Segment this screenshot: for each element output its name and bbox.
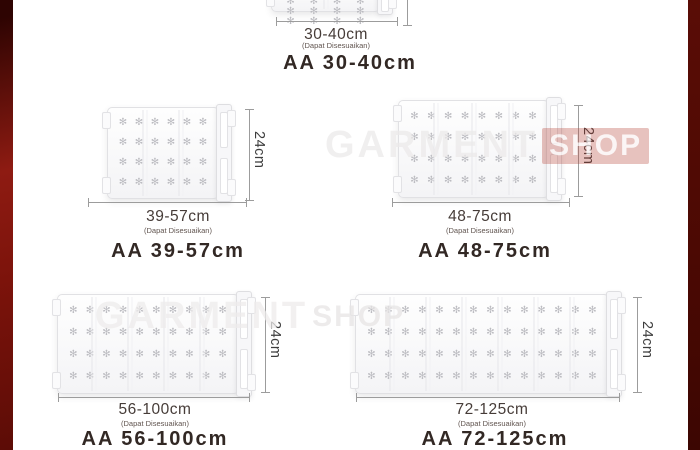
shelf-corner-tab xyxy=(227,110,236,127)
height-value: 24cm xyxy=(267,321,283,358)
flower-hole-icon: ✻ xyxy=(151,178,159,188)
flower-hole-icon: ✻ xyxy=(401,328,409,338)
flower-hole-icon: ✻ xyxy=(588,328,596,338)
flower-hole-icon: ✻ xyxy=(136,372,144,382)
flower-hole-icon: ✻ xyxy=(486,350,494,360)
flower-hole-icon: ✻ xyxy=(537,306,545,316)
flower-hole-icon: ✻ xyxy=(588,372,596,382)
height-value: 24cm xyxy=(580,127,596,164)
section-divider xyxy=(390,297,395,391)
flower-hole-icon: ✻ xyxy=(219,328,227,338)
flower-hole-icon: ✻ xyxy=(461,112,469,122)
flower-hole-icon: ✻ xyxy=(503,306,511,316)
flower-hole-icon: ✻ xyxy=(169,328,177,338)
width-value: 56-100cm xyxy=(75,401,235,419)
height-value: 24cm xyxy=(251,131,267,168)
variant-title: AA 72-125cm xyxy=(400,428,590,450)
shelf-corner-tab xyxy=(247,374,256,391)
section-divider xyxy=(426,297,431,391)
flower-hole-icon: ✻ xyxy=(520,372,528,382)
section-divider xyxy=(142,110,147,196)
flower-hole-icon: ✻ xyxy=(136,350,144,360)
shelf-48-75: ✻✻✻✻✻✻✻✻✻✻✻✻✻✻✻✻✻✻✻✻✻✻✻✻✻✻✻✻✻✻✻✻ xyxy=(398,100,561,198)
section-divider xyxy=(462,297,467,391)
flower-hole-icon: ✻ xyxy=(102,306,110,316)
flower-hole-icon: ✻ xyxy=(444,133,452,143)
flower-hole-icon: ✻ xyxy=(136,306,144,316)
shelf-panel: ✻✻✻✻✻✻✻✻✻✻✻✻✻✻✻✻✻✻✻✻✻✻✻✻✻✻✻✻✻✻✻✻ xyxy=(398,100,549,198)
flower-hole-icon: ✻ xyxy=(528,176,536,186)
flower-hole-icon: ✻ xyxy=(69,350,77,360)
shelf-corner-tab xyxy=(617,297,626,314)
flower-hole-icon: ✻ xyxy=(199,138,207,148)
flower-hole-icon: ✻ xyxy=(469,306,477,316)
shelf-corner-tab xyxy=(393,176,402,193)
adjustable-note: (Dapat Disesuaikan) xyxy=(400,226,560,235)
flower-hole-icon: ✻ xyxy=(69,328,77,338)
width-dimension-line xyxy=(88,198,247,207)
adjustable-note: (Dapat Disesuaikan) xyxy=(276,41,396,50)
shelf-56-100: ✻✻✻✻✻✻✻✻✻✻✻✻✻✻✻✻✻✻✻✻✻✻✻✻✻✻✻✻✻✻✻✻✻✻✻✻✻✻✻✻ xyxy=(57,294,251,394)
section-divider xyxy=(534,297,539,391)
right-red-border xyxy=(688,0,700,450)
width-dimension-line xyxy=(276,17,398,26)
flower-hole-icon: ✻ xyxy=(167,158,175,168)
flower-hole-icon: ✻ xyxy=(554,372,562,382)
adjustable-note: (Dapat Disesuaikan) xyxy=(412,419,572,428)
flower-hole-icon: ✻ xyxy=(444,112,452,122)
flower-hole-icon: ✻ xyxy=(169,372,177,382)
flower-hole-icon: ✻ xyxy=(435,306,443,316)
flower-hole-icon: ✻ xyxy=(435,350,443,360)
shelf-corner-tab xyxy=(350,372,359,389)
perforation-grid: ✻✻✻✻✻✻✻✻✻✻✻✻✻✻✻✻✻✻✻✻✻✻✻✻ xyxy=(115,113,211,193)
flower-hole-icon: ✻ xyxy=(554,328,562,338)
flower-hole-icon: ✻ xyxy=(199,178,207,188)
flower-hole-icon: ✻ xyxy=(528,133,536,143)
flower-hole-icon: ✻ xyxy=(410,112,418,122)
flower-hole-icon: ✻ xyxy=(469,328,477,338)
flower-hole-icon: ✻ xyxy=(410,133,418,143)
flower-hole-icon: ✻ xyxy=(185,350,193,360)
variant-title: AA 39-57cm xyxy=(90,240,266,263)
flower-hole-icon: ✻ xyxy=(528,155,536,165)
perforation-grid: ✻✻✻✻✻✻✻✻✻✻✻✻✻✻✻✻✻✻✻✻✻✻✻✻✻✻✻✻✻✻✻✻✻✻✻✻✻✻✻✻… xyxy=(363,300,601,388)
adjustable-note: (Dapat Disesuaikan) xyxy=(75,419,235,428)
flower-hole-icon: ✻ xyxy=(461,133,469,143)
height-dimension-line-fragment xyxy=(403,0,412,26)
section-divider xyxy=(434,103,439,195)
adjustable-note: (Dapat Disesuaikan) xyxy=(98,226,258,235)
flower-hole-icon: ✻ xyxy=(435,328,443,338)
flower-hole-icon: ✻ xyxy=(199,118,207,128)
flower-hole-icon: ✻ xyxy=(478,155,486,165)
flower-hole-icon: ✻ xyxy=(185,372,193,382)
flower-hole-icon: ✻ xyxy=(461,155,469,165)
shelf-corner-tab xyxy=(247,297,256,314)
flower-hole-icon: ✻ xyxy=(503,328,511,338)
flower-hole-icon: ✻ xyxy=(588,350,596,360)
width-value: 39-57cm xyxy=(98,208,258,226)
flower-hole-icon: ✻ xyxy=(185,328,193,338)
flower-hole-icon: ✻ xyxy=(401,306,409,316)
flower-hole-icon: ✻ xyxy=(367,372,375,382)
section-divider xyxy=(164,297,169,391)
flower-hole-icon: ✻ xyxy=(167,138,175,148)
flower-hole-icon: ✻ xyxy=(503,372,511,382)
flower-hole-icon: ✻ xyxy=(169,350,177,360)
flower-hole-icon: ✻ xyxy=(152,372,160,382)
flower-hole-icon: ✻ xyxy=(486,306,494,316)
flower-hole-icon: ✻ xyxy=(503,350,511,360)
section-divider xyxy=(92,297,97,391)
section-divider xyxy=(179,110,184,196)
flower-hole-icon: ✻ xyxy=(219,372,227,382)
flower-hole-icon: ✻ xyxy=(119,138,127,148)
variant-title: AA 56-100cm xyxy=(65,428,245,450)
shelf-corner-tab xyxy=(557,103,566,120)
flower-hole-icon: ✻ xyxy=(219,306,227,316)
height-value: 24cm xyxy=(639,321,655,358)
flower-hole-icon: ✻ xyxy=(401,350,409,360)
flower-hole-icon: ✻ xyxy=(167,178,175,188)
section-divider xyxy=(200,297,205,391)
width-value: 72-125cm xyxy=(412,401,572,419)
flower-hole-icon: ✻ xyxy=(152,328,160,338)
flower-hole-icon: ✻ xyxy=(183,138,191,148)
flower-hole-icon: ✻ xyxy=(435,372,443,382)
flower-hole-icon: ✻ xyxy=(486,372,494,382)
shelf-corner-tab xyxy=(102,177,111,194)
flower-hole-icon: ✻ xyxy=(169,306,177,316)
flower-hole-icon: ✻ xyxy=(102,328,110,338)
flower-hole-icon: ✻ xyxy=(119,372,127,382)
flower-hole-icon: ✻ xyxy=(478,176,486,186)
flower-hole-icon: ✻ xyxy=(183,158,191,168)
shelf-corner-tab xyxy=(617,374,626,391)
product-size-chart-image: GARMENT SHOP GARMENT SHOP ✻✻✻✻✻✻✻✻✻✻✻✻✻✻… xyxy=(0,0,700,450)
flower-hole-icon: ✻ xyxy=(469,372,477,382)
flower-hole-icon: ✻ xyxy=(152,350,160,360)
flower-hole-icon: ✻ xyxy=(537,372,545,382)
flower-hole-icon: ✻ xyxy=(102,372,110,382)
flower-hole-icon: ✻ xyxy=(452,328,460,338)
variant-title: AA 30-40cm xyxy=(250,52,450,75)
flower-hole-icon: ✻ xyxy=(528,112,536,122)
shelf-corner-tab xyxy=(227,179,236,196)
flower-hole-icon: ✻ xyxy=(167,118,175,128)
flower-hole-icon: ✻ xyxy=(495,176,503,186)
flower-hole-icon: ✻ xyxy=(69,372,77,382)
flower-hole-icon: ✻ xyxy=(554,306,562,316)
shelf-72-125: ✻✻✻✻✻✻✻✻✻✻✻✻✻✻✻✻✻✻✻✻✻✻✻✻✻✻✻✻✻✻✻✻✻✻✻✻✻✻✻✻… xyxy=(355,294,621,394)
shelf-corner-tab xyxy=(102,112,111,129)
flower-hole-icon: ✻ xyxy=(367,350,375,360)
flower-hole-icon: ✻ xyxy=(119,328,127,338)
flower-hole-icon: ✻ xyxy=(452,350,460,360)
flower-hole-icon: ✻ xyxy=(401,372,409,382)
flower-hole-icon: ✻ xyxy=(461,176,469,186)
flower-hole-icon: ✻ xyxy=(151,118,159,128)
variant-title: AA 48-75cm xyxy=(395,240,575,263)
perforation-grid: ✻✻✻✻✻✻✻✻✻✻✻✻✻✻✻✻✻✻✻✻✻✻✻✻✻✻✻✻✻✻✻✻✻✻✻✻✻✻✻✻ xyxy=(65,300,231,388)
flower-hole-icon: ✻ xyxy=(537,350,545,360)
flower-hole-icon: ✻ xyxy=(444,176,452,186)
flower-hole-icon: ✻ xyxy=(486,328,494,338)
flower-hole-icon: ✻ xyxy=(119,306,127,316)
flower-hole-icon: ✻ xyxy=(495,133,503,143)
flower-hole-icon: ✻ xyxy=(152,306,160,316)
section-divider xyxy=(508,103,513,195)
flower-hole-icon: ✻ xyxy=(185,306,193,316)
flower-hole-icon: ✻ xyxy=(183,178,191,188)
flower-hole-icon: ✻ xyxy=(588,306,596,316)
shelf-39-57: ✻✻✻✻✻✻✻✻✻✻✻✻✻✻✻✻✻✻✻✻✻✻✻✻ xyxy=(107,107,231,199)
section-divider xyxy=(570,297,575,391)
flower-hole-icon: ✻ xyxy=(119,158,127,168)
flower-hole-icon: ✻ xyxy=(469,350,477,360)
flower-hole-icon: ✻ xyxy=(151,158,159,168)
shelf-corner-tab xyxy=(52,372,61,389)
section-divider xyxy=(323,0,328,9)
flower-hole-icon: ✻ xyxy=(444,155,452,165)
flower-hole-icon: ✻ xyxy=(102,350,110,360)
left-red-border xyxy=(0,0,13,450)
flower-hole-icon: ✻ xyxy=(119,178,127,188)
flower-hole-icon: ✻ xyxy=(183,118,191,128)
shelf-corner-tab xyxy=(266,0,275,7)
flower-hole-icon: ✻ xyxy=(119,350,127,360)
section-divider xyxy=(498,297,503,391)
flower-hole-icon: ✻ xyxy=(452,306,460,316)
flower-hole-icon: ✻ xyxy=(478,133,486,143)
flower-hole-icon: ✻ xyxy=(452,372,460,382)
flower-hole-icon: ✻ xyxy=(219,350,227,360)
flower-hole-icon: ✻ xyxy=(410,176,418,186)
shelf-corner-tab xyxy=(52,299,61,316)
flower-hole-icon: ✻ xyxy=(199,158,207,168)
flower-hole-icon: ✻ xyxy=(410,155,418,165)
shelf-panel: ✻✻✻✻✻✻✻✻✻✻✻✻✻✻✻✻ xyxy=(271,0,380,12)
width-value: 48-75cm xyxy=(400,208,560,226)
flower-hole-icon: ✻ xyxy=(367,328,375,338)
shelf-panel: ✻✻✻✻✻✻✻✻✻✻✻✻✻✻✻✻✻✻✻✻✻✻✻✻ xyxy=(107,107,219,199)
flower-hole-icon: ✻ xyxy=(367,306,375,316)
flower-hole-icon: ✻ xyxy=(69,306,77,316)
shelf-corner-tab xyxy=(393,105,402,122)
shelf-corner-tab xyxy=(350,299,359,316)
shelf-panel: ✻✻✻✻✻✻✻✻✻✻✻✻✻✻✻✻✻✻✻✻✻✻✻✻✻✻✻✻✻✻✻✻✻✻✻✻✻✻✻✻ xyxy=(57,294,239,394)
width-dimension-line xyxy=(392,198,570,207)
flower-hole-icon: ✻ xyxy=(520,306,528,316)
flower-hole-icon: ✻ xyxy=(495,155,503,165)
section-divider xyxy=(128,297,133,391)
flower-hole-icon: ✻ xyxy=(537,328,545,338)
section-divider xyxy=(471,103,476,195)
shelf-30-40: ✻✻✻✻✻✻✻✻✻✻✻✻✻✻✻✻ xyxy=(271,0,392,12)
flower-hole-icon: ✻ xyxy=(495,112,503,122)
shelf-corner-tab xyxy=(388,0,397,9)
flower-hole-icon: ✻ xyxy=(136,328,144,338)
flower-hole-icon: ✻ xyxy=(520,328,528,338)
flower-hole-icon: ✻ xyxy=(151,138,159,148)
flower-hole-icon: ✻ xyxy=(554,350,562,360)
flower-hole-icon: ✻ xyxy=(520,350,528,360)
flower-hole-icon: ✻ xyxy=(478,112,486,122)
shelf-panel: ✻✻✻✻✻✻✻✻✻✻✻✻✻✻✻✻✻✻✻✻✻✻✻✻✻✻✻✻✻✻✻✻✻✻✻✻✻✻✻✻… xyxy=(355,294,609,394)
flower-hole-icon: ✻ xyxy=(119,118,127,128)
shelf-corner-tab xyxy=(557,178,566,195)
